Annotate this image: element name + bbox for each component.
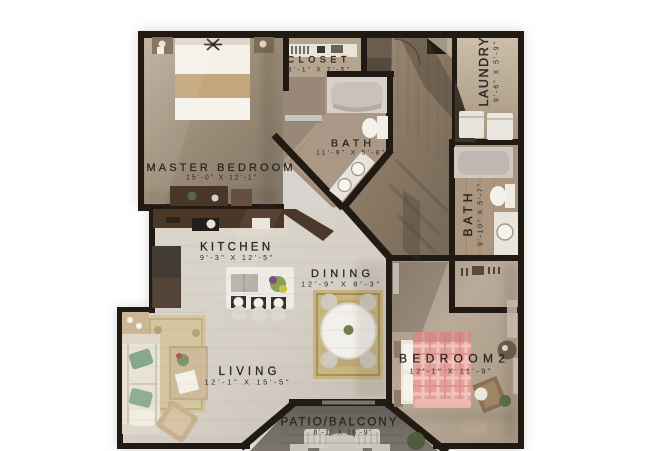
svg-text:12'-1" X 15'-5": 12'-1" X 15'-5" (205, 378, 289, 387)
svg-text:8'-1" X 16'-9": 8'-1" X 16'-9" (314, 430, 373, 437)
svg-text:8'-1" X 7'-5": 8'-1" X 7'-5" (288, 67, 350, 74)
svg-text:15'-0" X 12'-1": 15'-0" X 12'-1" (186, 175, 257, 182)
svg-text:9'-6" X 5'-9": 9'-6" X 5'-9" (494, 42, 501, 103)
svg-text:9'-10" X 5'-7": 9'-10" X 5'-7" (478, 184, 485, 247)
svg-text:PATIO/BALCONY: PATIO/BALCONY (281, 417, 397, 429)
